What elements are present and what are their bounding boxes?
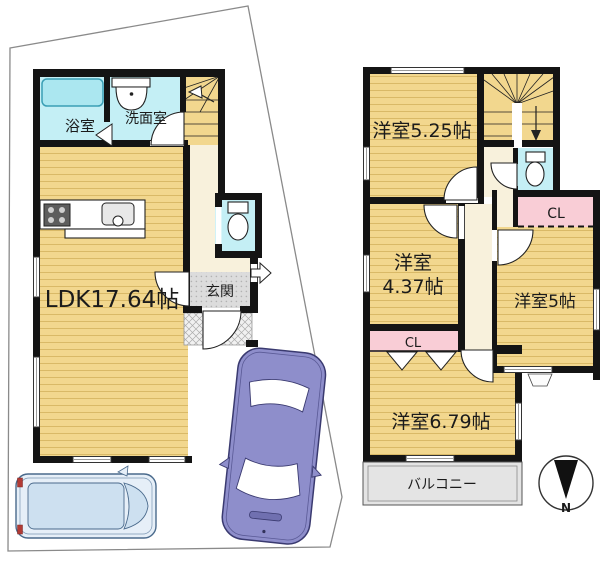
- closet-a-label: CL: [405, 336, 422, 351]
- car-van-topview: [16, 466, 156, 538]
- washroom-label: 洗面室: [125, 110, 167, 127]
- closet-b-label: CL: [547, 206, 565, 222]
- room-5-label: 洋室5帖: [514, 292, 576, 312]
- floor-2: バルコニー 洋室5.25帖 洋室 4.37帖 CL CL 洋室5帖 洋室6.79…: [363, 67, 600, 505]
- stove-icon: [44, 204, 70, 226]
- compass-north-icon: N: [539, 456, 593, 515]
- van-taillight-icon: [18, 478, 23, 487]
- floor-plan-svg: 浴室 洗面室 LDK17.64帖 玄関: [0, 0, 600, 562]
- hall-2f-floor-b: [497, 197, 513, 232]
- compass-north-label: N: [561, 501, 571, 515]
- stairs-2f-opening: [512, 103, 522, 143]
- room-437-label-line2: 4.37帖: [382, 276, 443, 298]
- entrance-label: 玄関: [206, 283, 234, 300]
- ldk-label: LDK17.64帖: [45, 287, 179, 313]
- van-roof-window: [28, 483, 124, 529]
- room-5-door-gap: [493, 230, 496, 261]
- bathtub: [42, 79, 103, 106]
- balcony-label: バルコニー: [407, 477, 477, 493]
- van-taillight-icon: [18, 525, 23, 534]
- bath-label: 浴室: [65, 117, 95, 135]
- room-679-label: 洋室6.79帖: [391, 411, 490, 433]
- room-525-label: 洋室5.25帖: [372, 120, 471, 142]
- hall-2f-floor-c: [463, 204, 492, 352]
- room-437-door-gap: [459, 206, 464, 239]
- toilet-1f-door-gap: [216, 207, 222, 244]
- toilet-1f-fixture: [228, 202, 248, 240]
- shutter-box-icon: [528, 374, 552, 386]
- toilet-2f-fixture: [526, 152, 545, 186]
- floor-plan-page: 浴室 洗面室 LDK17.64帖 玄関: [0, 0, 600, 562]
- balcony: バルコニー: [363, 462, 522, 505]
- room-437-label-line1: 洋室: [394, 252, 432, 274]
